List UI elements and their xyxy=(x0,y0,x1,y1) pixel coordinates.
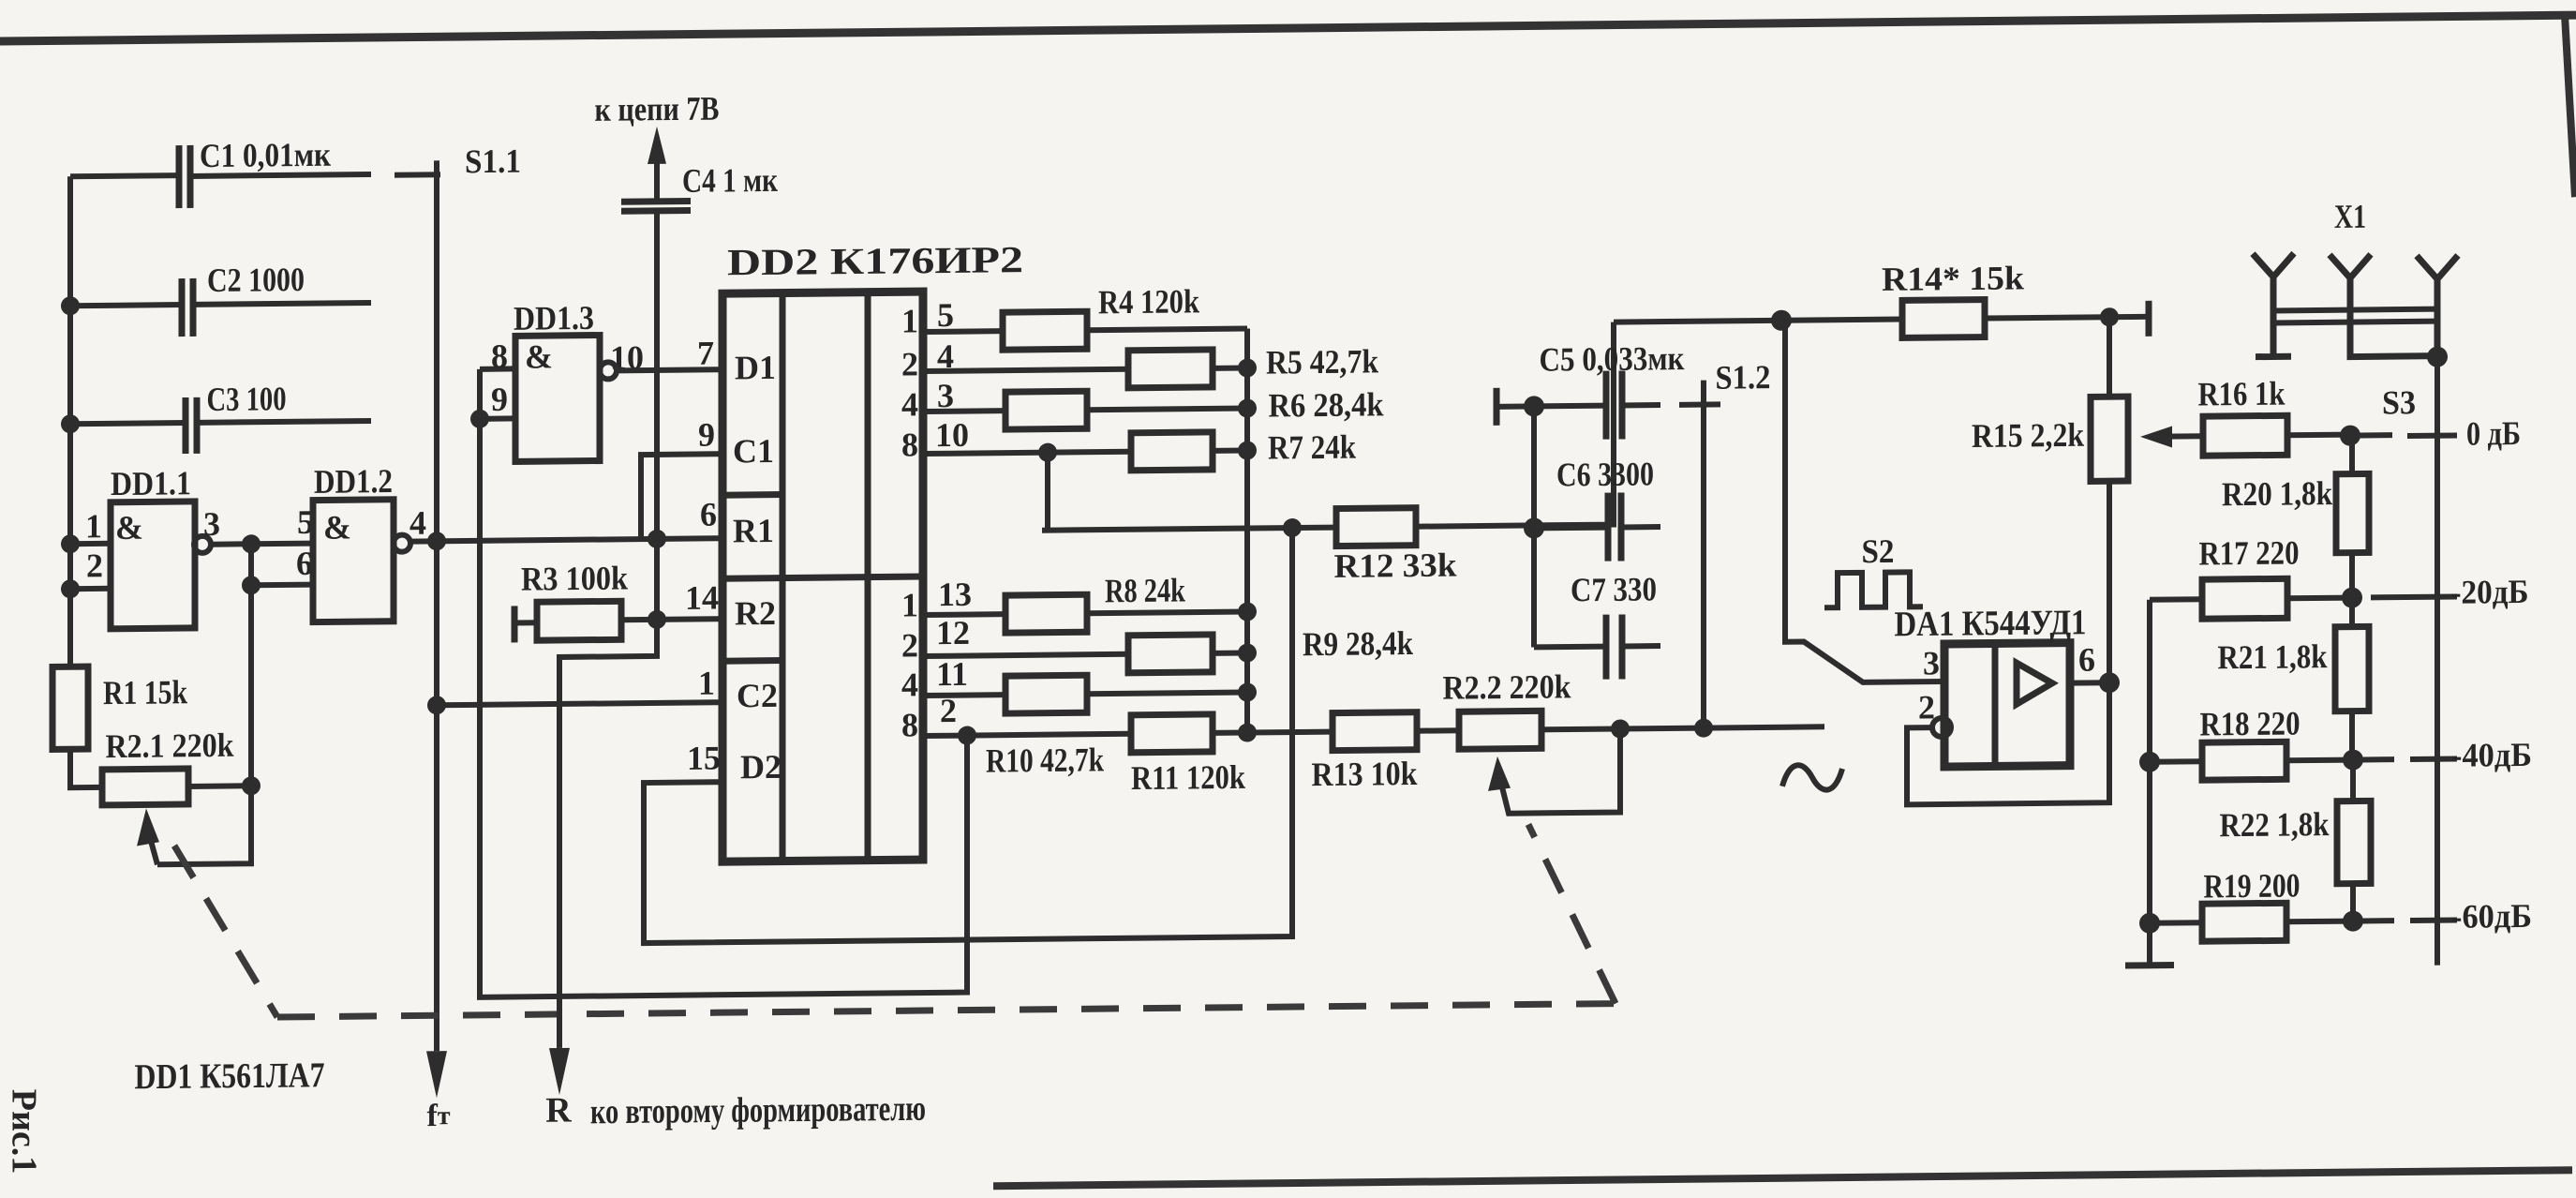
svg-text:R16 1k: R16 1k xyxy=(2198,375,2286,413)
svg-text:C2 1000: C2 1000 xyxy=(207,261,305,299)
svg-text:C2: C2 xyxy=(737,677,778,714)
svg-text:-40дБ: -40дБ xyxy=(2451,736,2532,774)
svg-text:&: & xyxy=(323,508,351,546)
svg-text:R11 120k: R11 120k xyxy=(1131,758,1245,797)
svg-text:4: 4 xyxy=(901,666,918,703)
svg-text:11: 11 xyxy=(936,655,968,693)
svg-text:2: 2 xyxy=(901,626,918,664)
svg-text:1: 1 xyxy=(901,302,918,339)
svg-text:R21 1,8k: R21 1,8k xyxy=(2218,637,2328,676)
svg-text:9: 9 xyxy=(491,381,508,418)
svg-text:2: 2 xyxy=(901,345,918,382)
svg-text:DD1.2: DD1.2 xyxy=(314,462,393,501)
svg-text:0 дБ: 0 дБ xyxy=(2466,414,2521,453)
svg-text:&: & xyxy=(525,337,553,375)
svg-text:12: 12 xyxy=(936,614,970,651)
svg-text:R15 2,2k: R15 2,2k xyxy=(1972,416,2084,455)
svg-text:S2: S2 xyxy=(1862,532,1895,570)
svg-text:2: 2 xyxy=(86,547,103,584)
svg-text:R14* 15k: R14* 15k xyxy=(1882,259,2024,298)
svg-text:C1: C1 xyxy=(733,432,774,470)
svg-text:R10 42,7k: R10 42,7k xyxy=(986,741,1104,779)
svg-text:-60дБ: -60дБ xyxy=(2451,897,2532,936)
svg-text:C1 0,01мк: C1 0,01мк xyxy=(200,136,331,174)
svg-text:10: 10 xyxy=(935,416,969,454)
svg-text:3: 3 xyxy=(1923,644,1940,681)
svg-text:R9 28,4k: R9 28,4k xyxy=(1303,624,1413,663)
svg-text:C6 3300: C6 3300 xyxy=(1556,455,1654,493)
svg-text:S3: S3 xyxy=(2382,383,2416,421)
svg-text:R1: R1 xyxy=(733,512,774,549)
svg-text:4: 4 xyxy=(409,504,426,542)
svg-text:7: 7 xyxy=(697,335,714,372)
svg-text:C3 100: C3 100 xyxy=(207,380,287,418)
svg-text:ко второму формирователю: ко второму формирователю xyxy=(590,1089,926,1132)
svg-text:4: 4 xyxy=(901,385,918,423)
svg-text:R20 1,8k: R20 1,8k xyxy=(2222,474,2332,513)
svg-text:15: 15 xyxy=(687,739,721,776)
svg-text:X1: X1 xyxy=(2334,198,2366,235)
svg-text:R13 10k: R13 10k xyxy=(1312,755,1418,793)
svg-text:R18 220: R18 220 xyxy=(2200,704,2301,742)
svg-text:5: 5 xyxy=(937,296,954,334)
svg-text:6: 6 xyxy=(700,496,717,533)
svg-text:8: 8 xyxy=(901,426,918,463)
svg-text:R22 1,8k: R22 1,8k xyxy=(2220,805,2330,844)
svg-text:R1 15k: R1 15k xyxy=(103,673,187,711)
svg-text:Рис.1: Рис.1 xyxy=(4,1089,43,1175)
svg-text:R17 220: R17 220 xyxy=(2199,533,2300,572)
svg-text:9: 9 xyxy=(698,416,715,454)
svg-text:3: 3 xyxy=(203,505,220,543)
svg-text:1: 1 xyxy=(85,507,102,545)
svg-text:C4 1 мк: C4 1 мк xyxy=(682,161,778,200)
svg-text:D2: D2 xyxy=(740,748,782,786)
svg-text:C7 330: C7 330 xyxy=(1571,570,1657,608)
svg-text:R: R xyxy=(545,1091,572,1131)
svg-text:R2: R2 xyxy=(735,594,776,632)
svg-text:6: 6 xyxy=(2078,641,2095,679)
svg-text:DD1.3: DD1.3 xyxy=(514,299,594,337)
svg-text:R7 24k: R7 24k xyxy=(1268,428,1356,467)
svg-text:R5 42,7k: R5 42,7k xyxy=(1266,342,1378,381)
svg-text:R2.1 220k: R2.1 220k xyxy=(106,726,234,765)
svg-text:R2.2 220k: R2.2 220k xyxy=(1443,667,1571,706)
svg-text:1: 1 xyxy=(901,586,918,623)
svg-text:R6 28,4k: R6 28,4k xyxy=(1269,385,1384,424)
svg-text:8: 8 xyxy=(901,706,918,743)
svg-text:8: 8 xyxy=(491,337,508,375)
svg-text:1: 1 xyxy=(698,665,715,702)
svg-text:fт: fт xyxy=(426,1099,450,1133)
svg-text:S1.1: S1.1 xyxy=(465,142,521,181)
svg-text:R4 120k: R4 120k xyxy=(1098,282,1199,321)
svg-text:R3 100k: R3 100k xyxy=(521,559,628,597)
svg-text:13: 13 xyxy=(938,576,972,613)
svg-text:D1: D1 xyxy=(735,349,776,386)
svg-text:к цепи 7В: к цепи 7В xyxy=(595,89,720,127)
svg-text:&: & xyxy=(115,509,143,547)
svg-text:DD2 К176ИР2: DD2 К176ИР2 xyxy=(727,238,1023,283)
svg-text:-20дБ: -20дБ xyxy=(2450,573,2528,611)
svg-text:C5 0,033мк: C5 0,033мк xyxy=(1539,339,1684,379)
svg-text:DD1 К561ЛА7: DD1 К561ЛА7 xyxy=(135,1056,325,1097)
svg-text:R12 33k: R12 33k xyxy=(1334,547,1457,585)
svg-text:DD1.1: DD1.1 xyxy=(111,464,191,502)
svg-text:R19 200: R19 200 xyxy=(2203,866,2300,905)
svg-text:S1.2: S1.2 xyxy=(1716,358,1771,397)
svg-text:R8 24k: R8 24k xyxy=(1105,571,1185,609)
svg-text:DA1 К544УД1: DA1 К544УД1 xyxy=(1895,603,2087,644)
svg-text:14: 14 xyxy=(685,579,719,617)
